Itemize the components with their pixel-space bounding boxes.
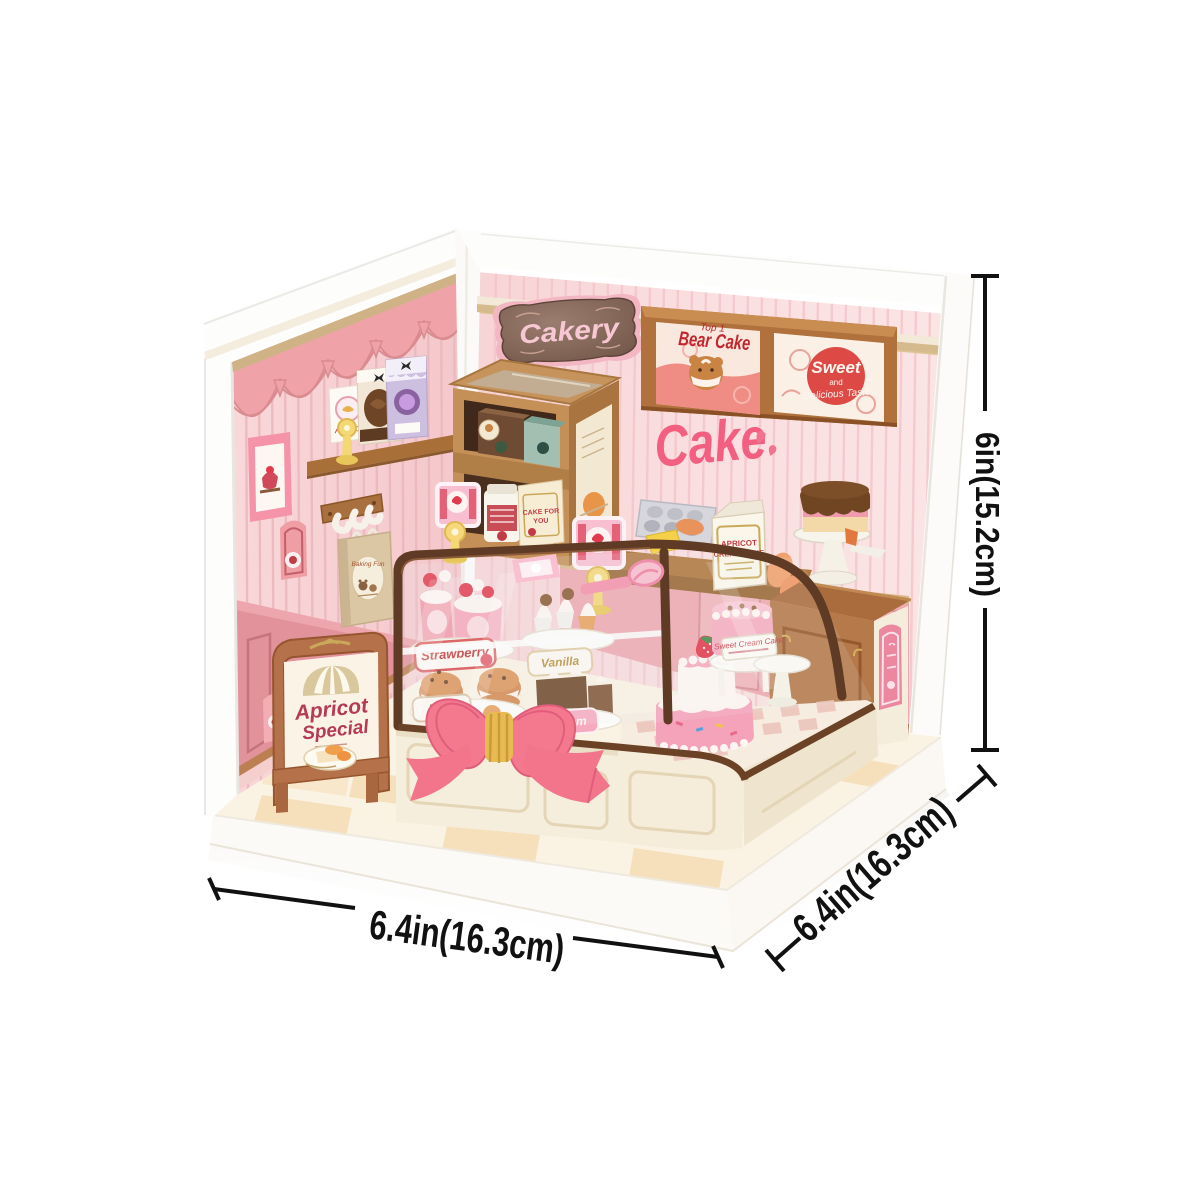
- svg-text:and: and: [829, 378, 842, 387]
- svg-text:6in(15.2cm): 6in(15.2cm): [969, 432, 1006, 597]
- svg-text:Sweet: Sweet: [811, 358, 861, 377]
- svg-text:YOU: YOU: [533, 518, 549, 526]
- svg-text:Cake: Cake: [652, 405, 769, 480]
- svg-text:Baking Fun: Baking Fun: [352, 561, 385, 568]
- svg-text:Top 1: Top 1: [700, 322, 725, 335]
